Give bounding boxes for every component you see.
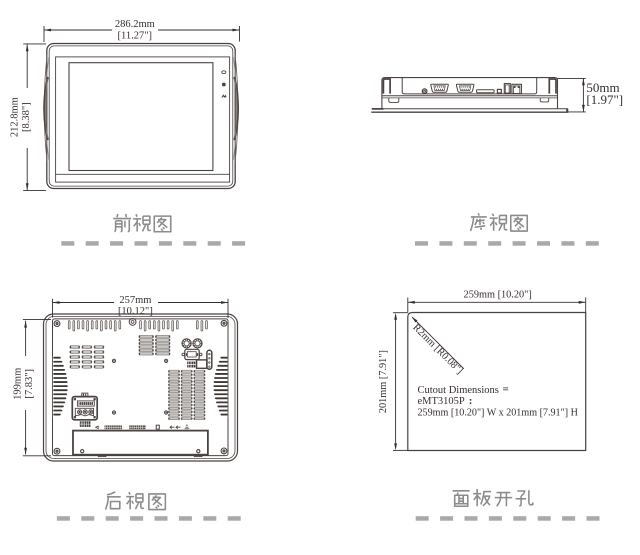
svg-text:=: = [503, 384, 509, 396]
svg-text:212.8mm: 212.8mm [9, 97, 20, 137]
svg-text:[10.12"]: [10.12"] [118, 306, 153, 317]
svg-text:[11.27"]: [11.27"] [118, 31, 153, 42]
svg-text:201mm [7.91"]: 201mm [7.91"] [378, 350, 389, 413]
svg-text:Cutout Dimensions: Cutout Dimensions [418, 385, 499, 396]
svg-text:259mm [10.20"] W x 201mm [7.91: 259mm [10.20"] W x 201mm [7.91"] H [418, 407, 578, 418]
svg-text:[8.38"]: [8.38"] [21, 102, 32, 132]
svg-text:257mm: 257mm [119, 295, 151, 306]
svg-text:[1.97"]: [1.97"] [586, 92, 623, 107]
svg-text:286.2mm: 286.2mm [115, 19, 155, 30]
svg-text:[7.83"]: [7.83"] [24, 369, 35, 399]
svg-text:eMT3105P: eMT3105P [418, 396, 465, 407]
svg-text::: : [469, 395, 473, 407]
svg-text:259mm [10.20"]: 259mm [10.20"] [464, 289, 532, 300]
svg-text:199mm: 199mm [13, 368, 24, 400]
